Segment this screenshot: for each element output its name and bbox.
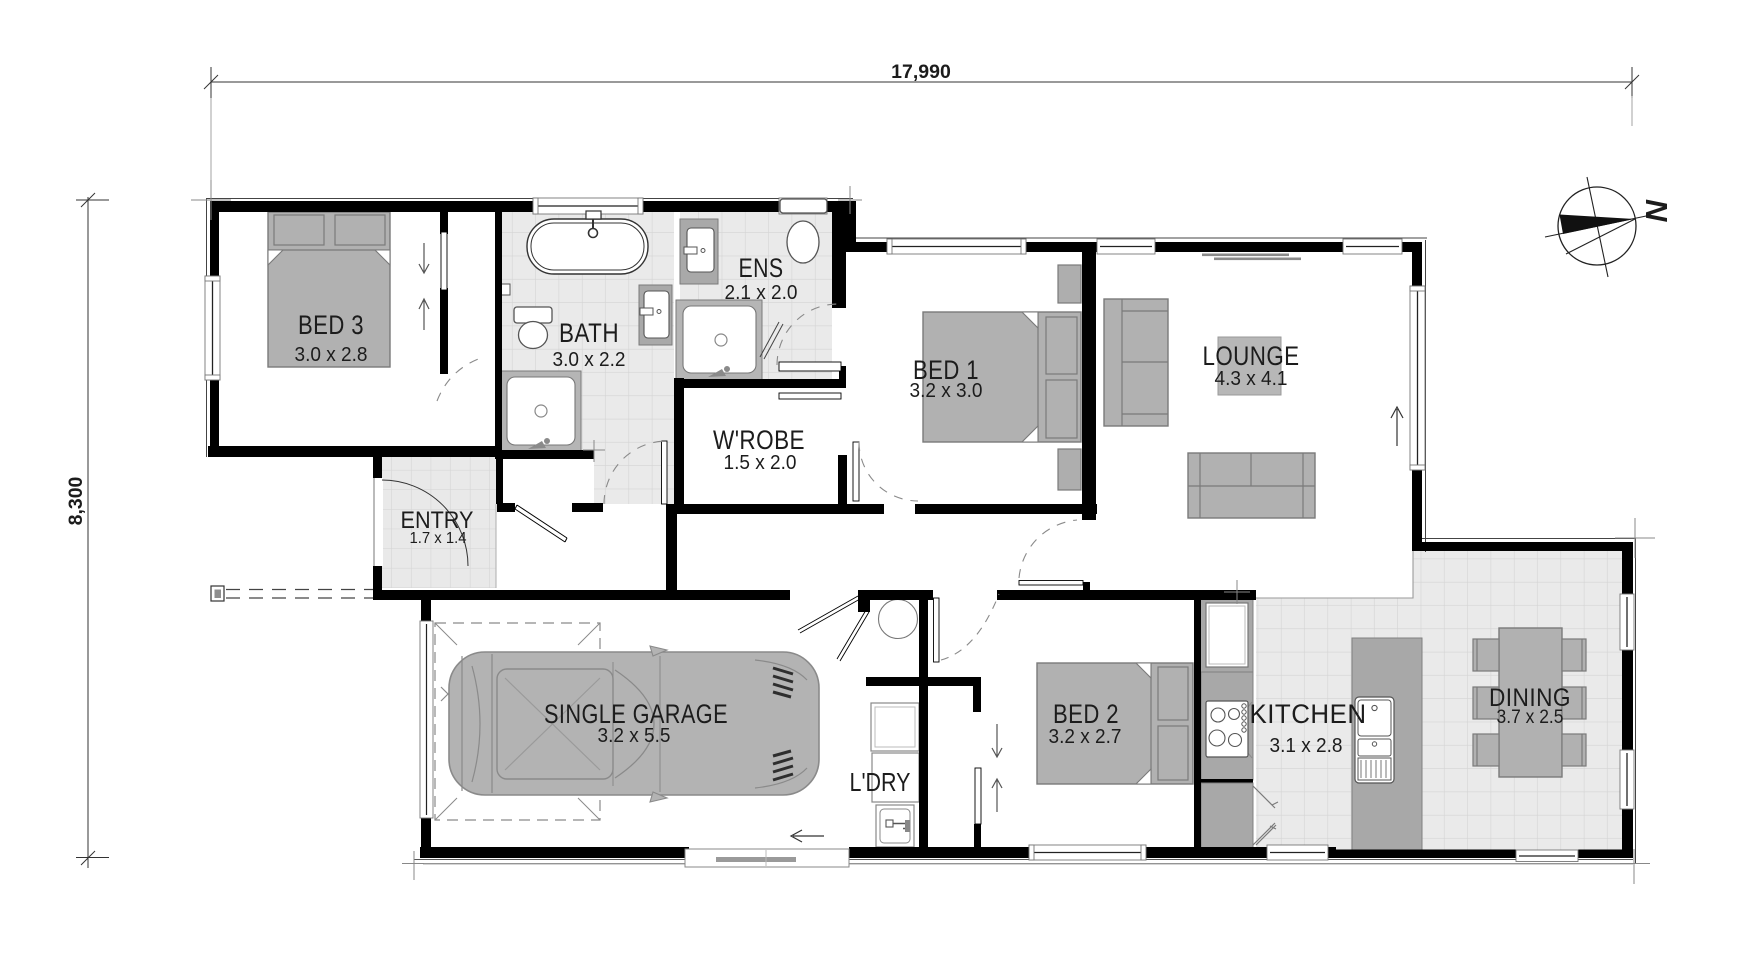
- svg-text:BED 3: BED 3: [298, 310, 364, 340]
- svg-text:2.1 x 2.0: 2.1 x 2.0: [725, 282, 798, 304]
- svg-text:W'ROBE: W'ROBE: [713, 425, 805, 455]
- svg-text:3.2 x 2.7: 3.2 x 2.7: [1049, 726, 1122, 748]
- svg-text:KITCHEN: KITCHEN: [1250, 699, 1367, 729]
- svg-text:ENS: ENS: [739, 253, 784, 283]
- svg-text:LOUNGE: LOUNGE: [1203, 341, 1300, 371]
- svg-text:BATH: BATH: [559, 318, 619, 348]
- svg-text:3.2 x 3.0: 3.2 x 3.0: [910, 380, 983, 402]
- svg-text:1.7 x 1.4: 1.7 x 1.4: [410, 530, 467, 547]
- svg-text:3.1 x 2.8: 3.1 x 2.8: [1270, 735, 1343, 757]
- svg-text:L'DRY: L'DRY: [850, 767, 911, 797]
- svg-text:N: N: [1639, 199, 1674, 222]
- svg-text:17,990: 17,990: [891, 61, 951, 83]
- svg-text:1.5 x 2.0: 1.5 x 2.0: [724, 452, 797, 474]
- svg-text:4.3 x 4.1: 4.3 x 4.1: [1215, 368, 1288, 390]
- svg-text:3.0 x 2.8: 3.0 x 2.8: [295, 344, 368, 366]
- svg-text:BED 2: BED 2: [1053, 699, 1119, 729]
- svg-text:8,300: 8,300: [65, 476, 87, 525]
- svg-text:3.2 x 5.5: 3.2 x 5.5: [598, 725, 671, 747]
- svg-text:3.0 x 2.2: 3.0 x 2.2: [553, 349, 626, 371]
- svg-text:3.7 x 2.5: 3.7 x 2.5: [1497, 707, 1564, 728]
